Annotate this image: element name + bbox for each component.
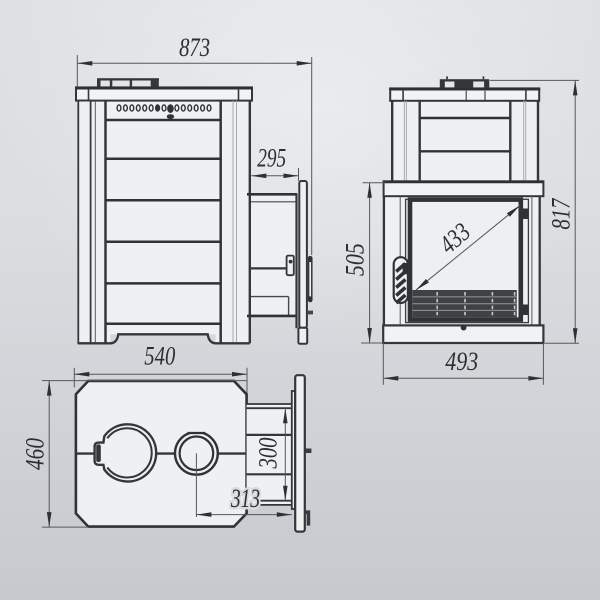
svg-text:540: 540: [144, 342, 175, 371]
svg-text:817: 817: [546, 198, 575, 230]
svg-text:313: 313: [230, 484, 260, 513]
svg-text:873: 873: [179, 33, 210, 62]
svg-text:295: 295: [257, 143, 286, 172]
svg-text:505: 505: [341, 243, 370, 276]
svg-text:493: 493: [445, 347, 478, 376]
svg-text:460: 460: [21, 438, 50, 470]
svg-text:300: 300: [253, 438, 282, 470]
